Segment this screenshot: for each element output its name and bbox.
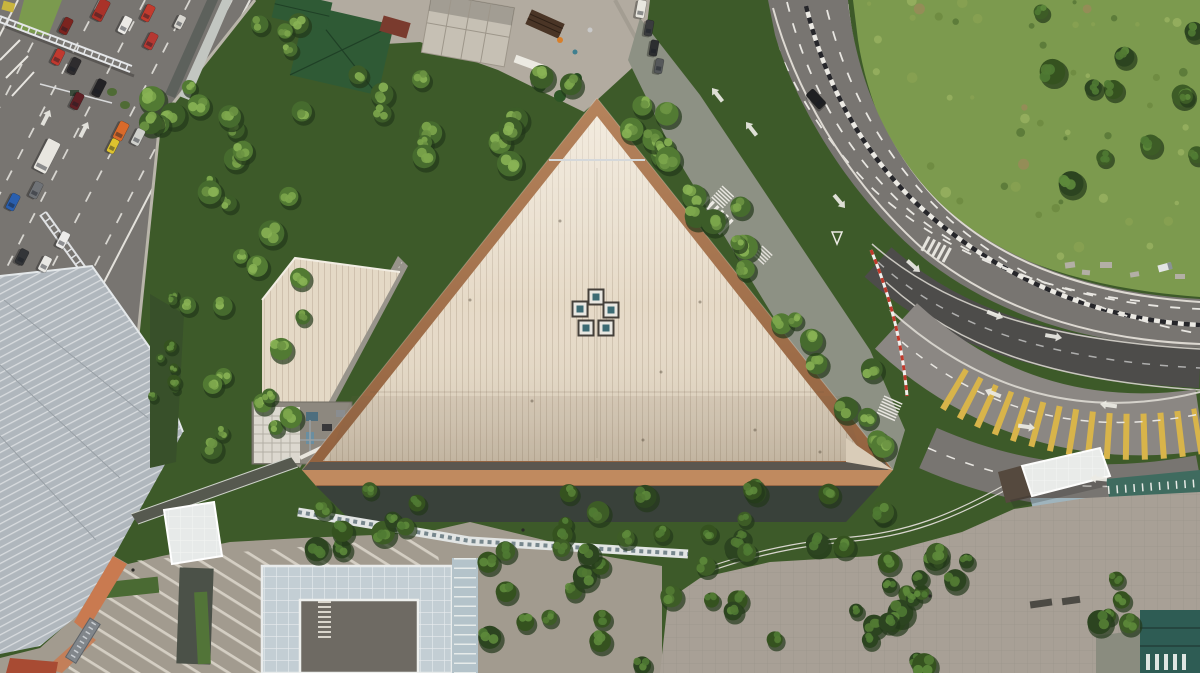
hill-shrub [1065,130,1071,136]
hill-shrub [1153,74,1160,81]
hill-shrub [910,15,916,21]
copper-eave [302,470,893,486]
bare-patch [1021,104,1027,110]
hill-shrub [873,68,880,75]
hill-shrub [1091,22,1095,26]
hill-shrub [1035,211,1042,218]
skylight [579,321,594,336]
hill-shrub [1058,199,1063,204]
hill-shrub [940,187,951,198]
hill-shrub [1070,70,1076,76]
machinery [557,37,563,43]
hill-shrub [1175,201,1180,206]
hill-shrub [927,162,935,170]
hill-shrub [1063,136,1067,140]
bare-patch [914,3,925,14]
hill-shrub [1164,17,1169,22]
hill-shrub [1040,42,1047,49]
hill-shrub [867,2,871,6]
bare-patch [1018,159,1029,170]
hill-shrub [1016,128,1025,137]
hill-shrub [1072,0,1076,4]
skylight [604,303,619,318]
hill-shrub [1182,124,1188,130]
hill-shrub [1179,68,1188,77]
machinery [306,412,318,421]
hill-shrub [1178,149,1185,156]
pedestrian [521,528,524,531]
machinery [322,424,332,431]
skylight [573,302,588,317]
hill-shrub [1147,103,1153,109]
hill-shrub [1173,18,1182,27]
atrium-building: Glass atrium building [262,566,452,673]
hill-shrub [1037,120,1044,127]
skylight [589,290,604,305]
pedestrian [131,568,134,571]
pedestrian [928,594,931,597]
hill-shrub [1146,243,1153,250]
hill-shrub [1164,217,1173,226]
scene-canvas: Aerial view of triangular-roofed buildin… [0,0,1200,673]
hill-shrub [1135,22,1140,27]
atrium-inner-roof [300,600,418,673]
hill-shrub [952,18,958,24]
median-planting [120,101,130,109]
hill-shrub [907,72,918,83]
median-planting [107,88,117,96]
hill-shrub [874,36,882,44]
machinery [573,50,578,55]
hill-shrub [973,14,983,24]
hill-shrub [1074,242,1085,253]
hill-shrub [1020,114,1030,124]
hill-shrub [1086,73,1091,78]
hill-shrub [1052,204,1060,212]
hill-shrub [935,12,943,20]
hill-shrub [1099,194,1108,203]
hill-shrub [956,198,963,205]
hill-shrub [947,95,953,101]
aerial-photo: Aerial view of triangular-roofed buildin… [0,0,1200,673]
roof-lower-band [328,396,864,461]
hill-shrub [1057,252,1065,260]
hill-shrub [970,95,974,99]
machinery [588,28,593,33]
machinery [336,410,345,417]
west-canopy [164,502,222,564]
hill-shrub [1104,132,1111,139]
teal-building: Teal-roofed building (corner) [1140,610,1200,673]
hill-shrub [1029,23,1035,29]
hill-shrub [1001,183,1008,190]
gutter [302,462,888,470]
hill-shrub [1011,182,1021,192]
skylight [599,321,614,336]
hill-shrub [1125,218,1133,226]
bare-patch [1083,4,1092,13]
hill-shrub [1111,15,1117,21]
hill-shrub [1072,21,1079,28]
